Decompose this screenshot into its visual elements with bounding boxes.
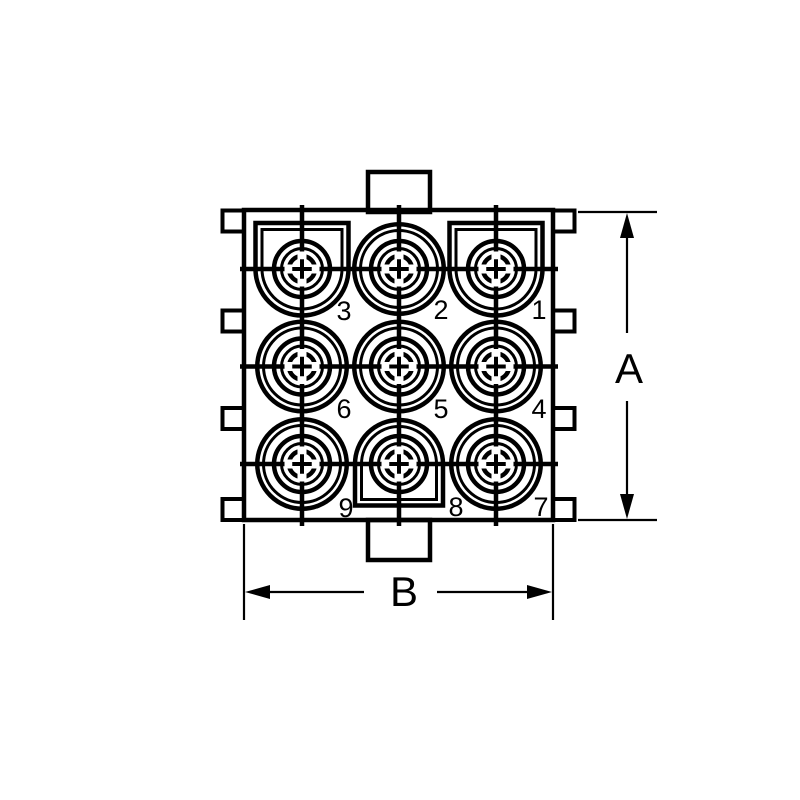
dimension-b: B xyxy=(244,524,553,620)
dimension-b-arrow-right-icon xyxy=(527,585,552,599)
pin-number-8: 8 xyxy=(448,492,463,522)
pin-number-4: 4 xyxy=(531,394,546,424)
pin-1 xyxy=(468,241,524,297)
right-notch-2 xyxy=(553,311,575,332)
right-notch-4 xyxy=(553,499,575,520)
pin-number-7: 7 xyxy=(533,492,548,522)
left-notch-1 xyxy=(223,211,245,232)
left-notch-2 xyxy=(223,311,245,332)
dimension-a-label: A xyxy=(615,345,643,392)
dimension-b-label: B xyxy=(390,568,418,615)
left-notch-3 xyxy=(223,408,245,429)
pin-number-3: 3 xyxy=(336,296,351,326)
pin-number-5: 5 xyxy=(433,394,448,424)
right-notch-3 xyxy=(553,408,575,429)
connector-diagram: 1 2 3 4 5 6 7 8 9 A B xyxy=(0,0,800,800)
dimension-a-arrow-down-icon xyxy=(620,494,634,519)
right-notch-1 xyxy=(553,211,575,232)
connector-diagram-page: 1 2 3 4 5 6 7 8 9 A B xyxy=(0,0,800,800)
pin-number-2: 2 xyxy=(433,295,448,325)
pin-number-6: 6 xyxy=(336,394,351,424)
pin-8 xyxy=(371,436,427,492)
pin-number-1: 1 xyxy=(531,295,546,325)
dimension-a-arrow-up-icon xyxy=(620,213,634,238)
pin-3 xyxy=(274,241,330,297)
pin-number-9: 9 xyxy=(338,493,353,523)
dimension-a: A xyxy=(578,212,657,520)
left-notch-4 xyxy=(223,499,245,520)
dimension-b-arrow-left-icon xyxy=(245,585,270,599)
